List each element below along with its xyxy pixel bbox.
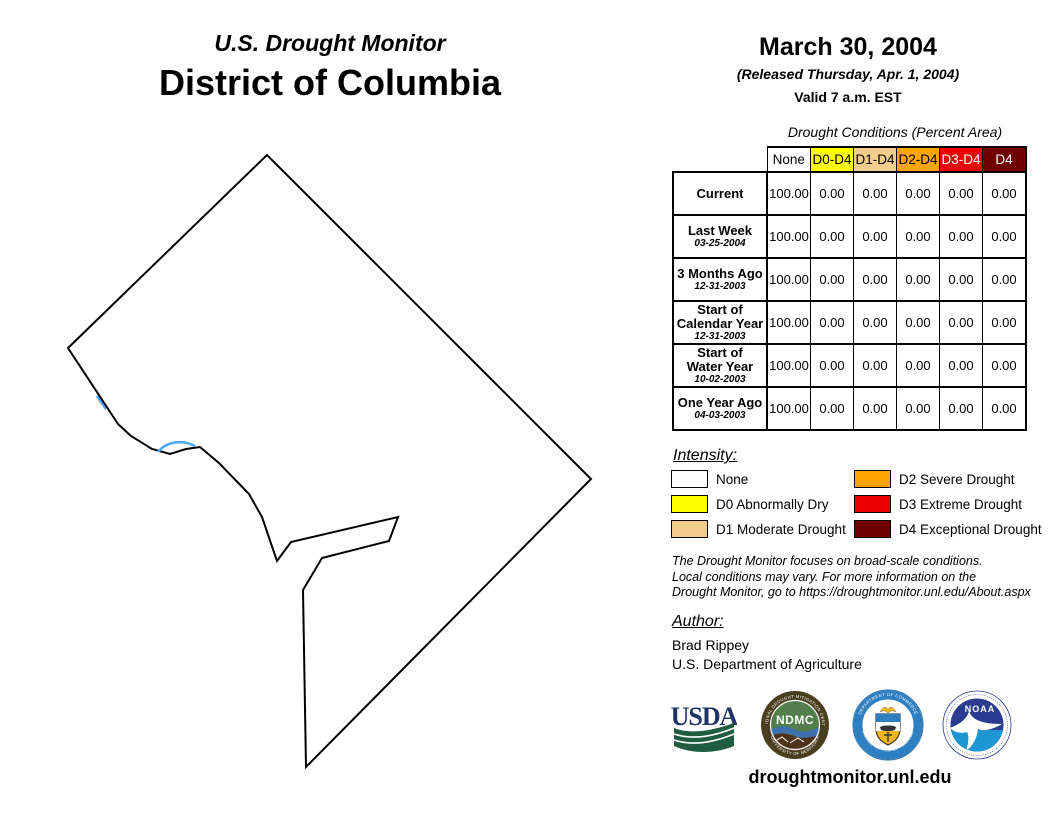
cell-value: 0.00 — [811, 387, 854, 430]
legend-item-d4: D4 Exceptional Drought — [854, 520, 1042, 538]
row-label-cell: One Year Ago 04-03-2003 — [673, 387, 767, 430]
cell-value: 0.00 — [940, 215, 983, 258]
column-header-d3-d4: D3-D4 — [940, 147, 983, 172]
legend-label: D4 Exceptional Drought — [899, 522, 1042, 537]
cell-value: 100.00 — [767, 258, 811, 301]
cell-value: 0.00 — [897, 258, 940, 301]
page-title: District of Columbia — [75, 62, 585, 104]
legend-label: D2 Severe Drought — [899, 472, 1015, 487]
legend-heading: Intensity: — [673, 447, 737, 465]
table-row-start-calendar-year: Start of Calendar Year 12-31-2003 100.00… — [673, 301, 1026, 344]
dc-boundary-outline — [68, 155, 591, 767]
row-label-cell: 3 Months Ago 12-31-2003 — [673, 258, 767, 301]
footer-url: droughtmonitor.unl.edu — [672, 767, 1028, 788]
column-header-d2-d4: D2-D4 — [897, 147, 940, 172]
legend-swatch-d1 — [671, 520, 708, 538]
table-row-start-water-year: Start of Water Year 10-02-2003 100.00 0.… — [673, 344, 1026, 387]
row-label-cell: Current — [673, 172, 767, 215]
cell-value: 0.00 — [811, 258, 854, 301]
legend-item-d0: D0 Abnormally Dry — [671, 495, 829, 513]
cell-value: 0.00 — [897, 344, 940, 387]
row-date: 03-25-2004 — [674, 238, 766, 249]
department-of-commerce-seal: DEPARTMENT OF COMMERCE UNITED STATES OF … — [851, 688, 925, 762]
legend-item-d3: D3 Extreme Drought — [854, 495, 1022, 513]
disclaimer-line2: Local conditions may vary. For more info… — [672, 570, 1031, 586]
row-label-line2: Water Year — [674, 360, 766, 374]
valid-time: Valid 7 a.m. EST — [664, 89, 1032, 105]
disclaimer-line3: Drought Monitor, go to https://droughtmo… — [672, 585, 1031, 601]
noaa-logo: NOAA — [942, 690, 1012, 760]
cell-value: 100.00 — [767, 172, 811, 215]
cell-value: 0.00 — [983, 301, 1027, 344]
row-date: 12-31-2003 — [674, 331, 766, 342]
legend-item-d1: D1 Moderate Drought — [671, 520, 846, 538]
author-name: Brad Rippey — [672, 637, 749, 653]
column-header-d0-d4: D0-D4 — [811, 147, 854, 172]
noaa-wordmark: NOAA — [965, 704, 996, 714]
usda-logo: USDA — [671, 702, 737, 756]
row-date: 04-03-2003 — [674, 410, 766, 421]
row-label-cell: Last Week 03-25-2004 — [673, 215, 767, 258]
cell-value: 0.00 — [854, 387, 897, 430]
doc-shield-chief — [876, 714, 900, 722]
legend-label: D1 Moderate Drought — [716, 522, 846, 537]
drought-monitor-report: U.S. Drought Monitor District of Columbi… — [0, 0, 1056, 816]
legend-swatch-d4 — [854, 520, 891, 538]
cell-value: 0.00 — [940, 258, 983, 301]
cell-value: 100.00 — [767, 215, 811, 258]
row-label: 3 Months Ago — [674, 267, 766, 281]
cell-value: 0.00 — [983, 215, 1027, 258]
cell-value: 100.00 — [767, 387, 811, 430]
legend-label: D0 Abnormally Dry — [716, 497, 829, 512]
table-header-row: None D0-D4 D1-D4 D2-D4 D3-D4 D4 — [673, 147, 1026, 172]
column-header-d4: D4 — [983, 147, 1027, 172]
row-label: Start of — [674, 303, 766, 317]
cell-value: 0.00 — [811, 172, 854, 215]
legend-item-d2: D2 Severe Drought — [854, 470, 1015, 488]
row-label: Current — [674, 187, 766, 201]
cell-value: 0.00 — [854, 172, 897, 215]
legend-swatch-none — [671, 470, 708, 488]
cell-value: 0.00 — [940, 301, 983, 344]
row-label: Last Week — [674, 224, 766, 238]
table-corner-cell — [673, 147, 767, 172]
table-row-one-year-ago: One Year Ago 04-03-2003 100.00 0.00 0.00… — [673, 387, 1026, 430]
column-header-d1-d4: D1-D4 — [854, 147, 897, 172]
legend-label: None — [716, 472, 748, 487]
author-heading: Author: — [672, 613, 724, 631]
cell-value: 0.00 — [983, 172, 1027, 215]
table-row-current: Current 100.00 0.00 0.00 0.00 0.00 0.00 — [673, 172, 1026, 215]
cell-value: 0.00 — [811, 344, 854, 387]
cell-value: 100.00 — [767, 301, 811, 344]
cell-value: 0.00 — [940, 172, 983, 215]
cell-value: 0.00 — [940, 344, 983, 387]
ndmc-wordmark: NDMC — [776, 713, 814, 727]
table-row-last-week: Last Week 03-25-2004 100.00 0.00 0.00 0.… — [673, 215, 1026, 258]
table-row-3-months-ago: 3 Months Ago 12-31-2003 100.00 0.00 0.00… — [673, 258, 1026, 301]
row-label-line2: Calendar Year — [674, 317, 766, 331]
released-date: (Released Thursday, Apr. 1, 2004) — [664, 66, 1032, 82]
cell-value: 0.00 — [897, 215, 940, 258]
legend-item-none: None — [671, 470, 748, 488]
cell-value: 0.00 — [854, 258, 897, 301]
cell-value: 0.00 — [854, 344, 897, 387]
cell-value: 0.00 — [983, 387, 1027, 430]
cell-value: 0.00 — [854, 301, 897, 344]
legend-label: D3 Extreme Drought — [899, 497, 1022, 512]
row-label: One Year Ago — [674, 396, 766, 410]
row-label: Start of — [674, 346, 766, 360]
cell-value: 0.00 — [983, 344, 1027, 387]
cell-value: 0.00 — [897, 301, 940, 344]
cell-value: 0.00 — [897, 387, 940, 430]
cell-value: 0.00 — [811, 215, 854, 258]
legend-swatch-d2 — [854, 470, 891, 488]
disclaimer-line1: The Drought Monitor focuses on broad-sca… — [672, 554, 1031, 570]
column-header-none: None — [767, 147, 811, 172]
cell-value: 0.00 — [811, 301, 854, 344]
cell-value: 0.00 — [983, 258, 1027, 301]
row-label-cell: Start of Water Year 10-02-2003 — [673, 344, 767, 387]
doc-ship — [880, 726, 896, 732]
drought-conditions-table: None D0-D4 D1-D4 D2-D4 D3-D4 D4 Current … — [672, 146, 1027, 431]
author-org: U.S. Department of Agriculture — [672, 656, 862, 672]
cell-value: 100.00 — [767, 344, 811, 387]
row-date: 10-02-2003 — [674, 374, 766, 385]
row-label-cell: Start of Calendar Year 12-31-2003 — [673, 301, 767, 344]
ndmc-logo: NDMC NATIONAL DROUGHT MITIGATION CENTER … — [760, 690, 830, 760]
cell-value: 0.00 — [854, 215, 897, 258]
legend-swatch-d0 — [671, 495, 708, 513]
cell-value: 0.00 — [940, 387, 983, 430]
legend-swatch-d3 — [854, 495, 891, 513]
cell-value: 0.00 — [897, 172, 940, 215]
map-date: March 30, 2004 — [664, 33, 1032, 62]
table-title: Drought Conditions (Percent Area) — [764, 124, 1026, 140]
disclaimer: The Drought Monitor focuses on broad-sca… — [672, 554, 1031, 601]
row-date: 12-31-2003 — [674, 281, 766, 292]
report-kicker: U.S. Drought Monitor — [75, 30, 585, 57]
